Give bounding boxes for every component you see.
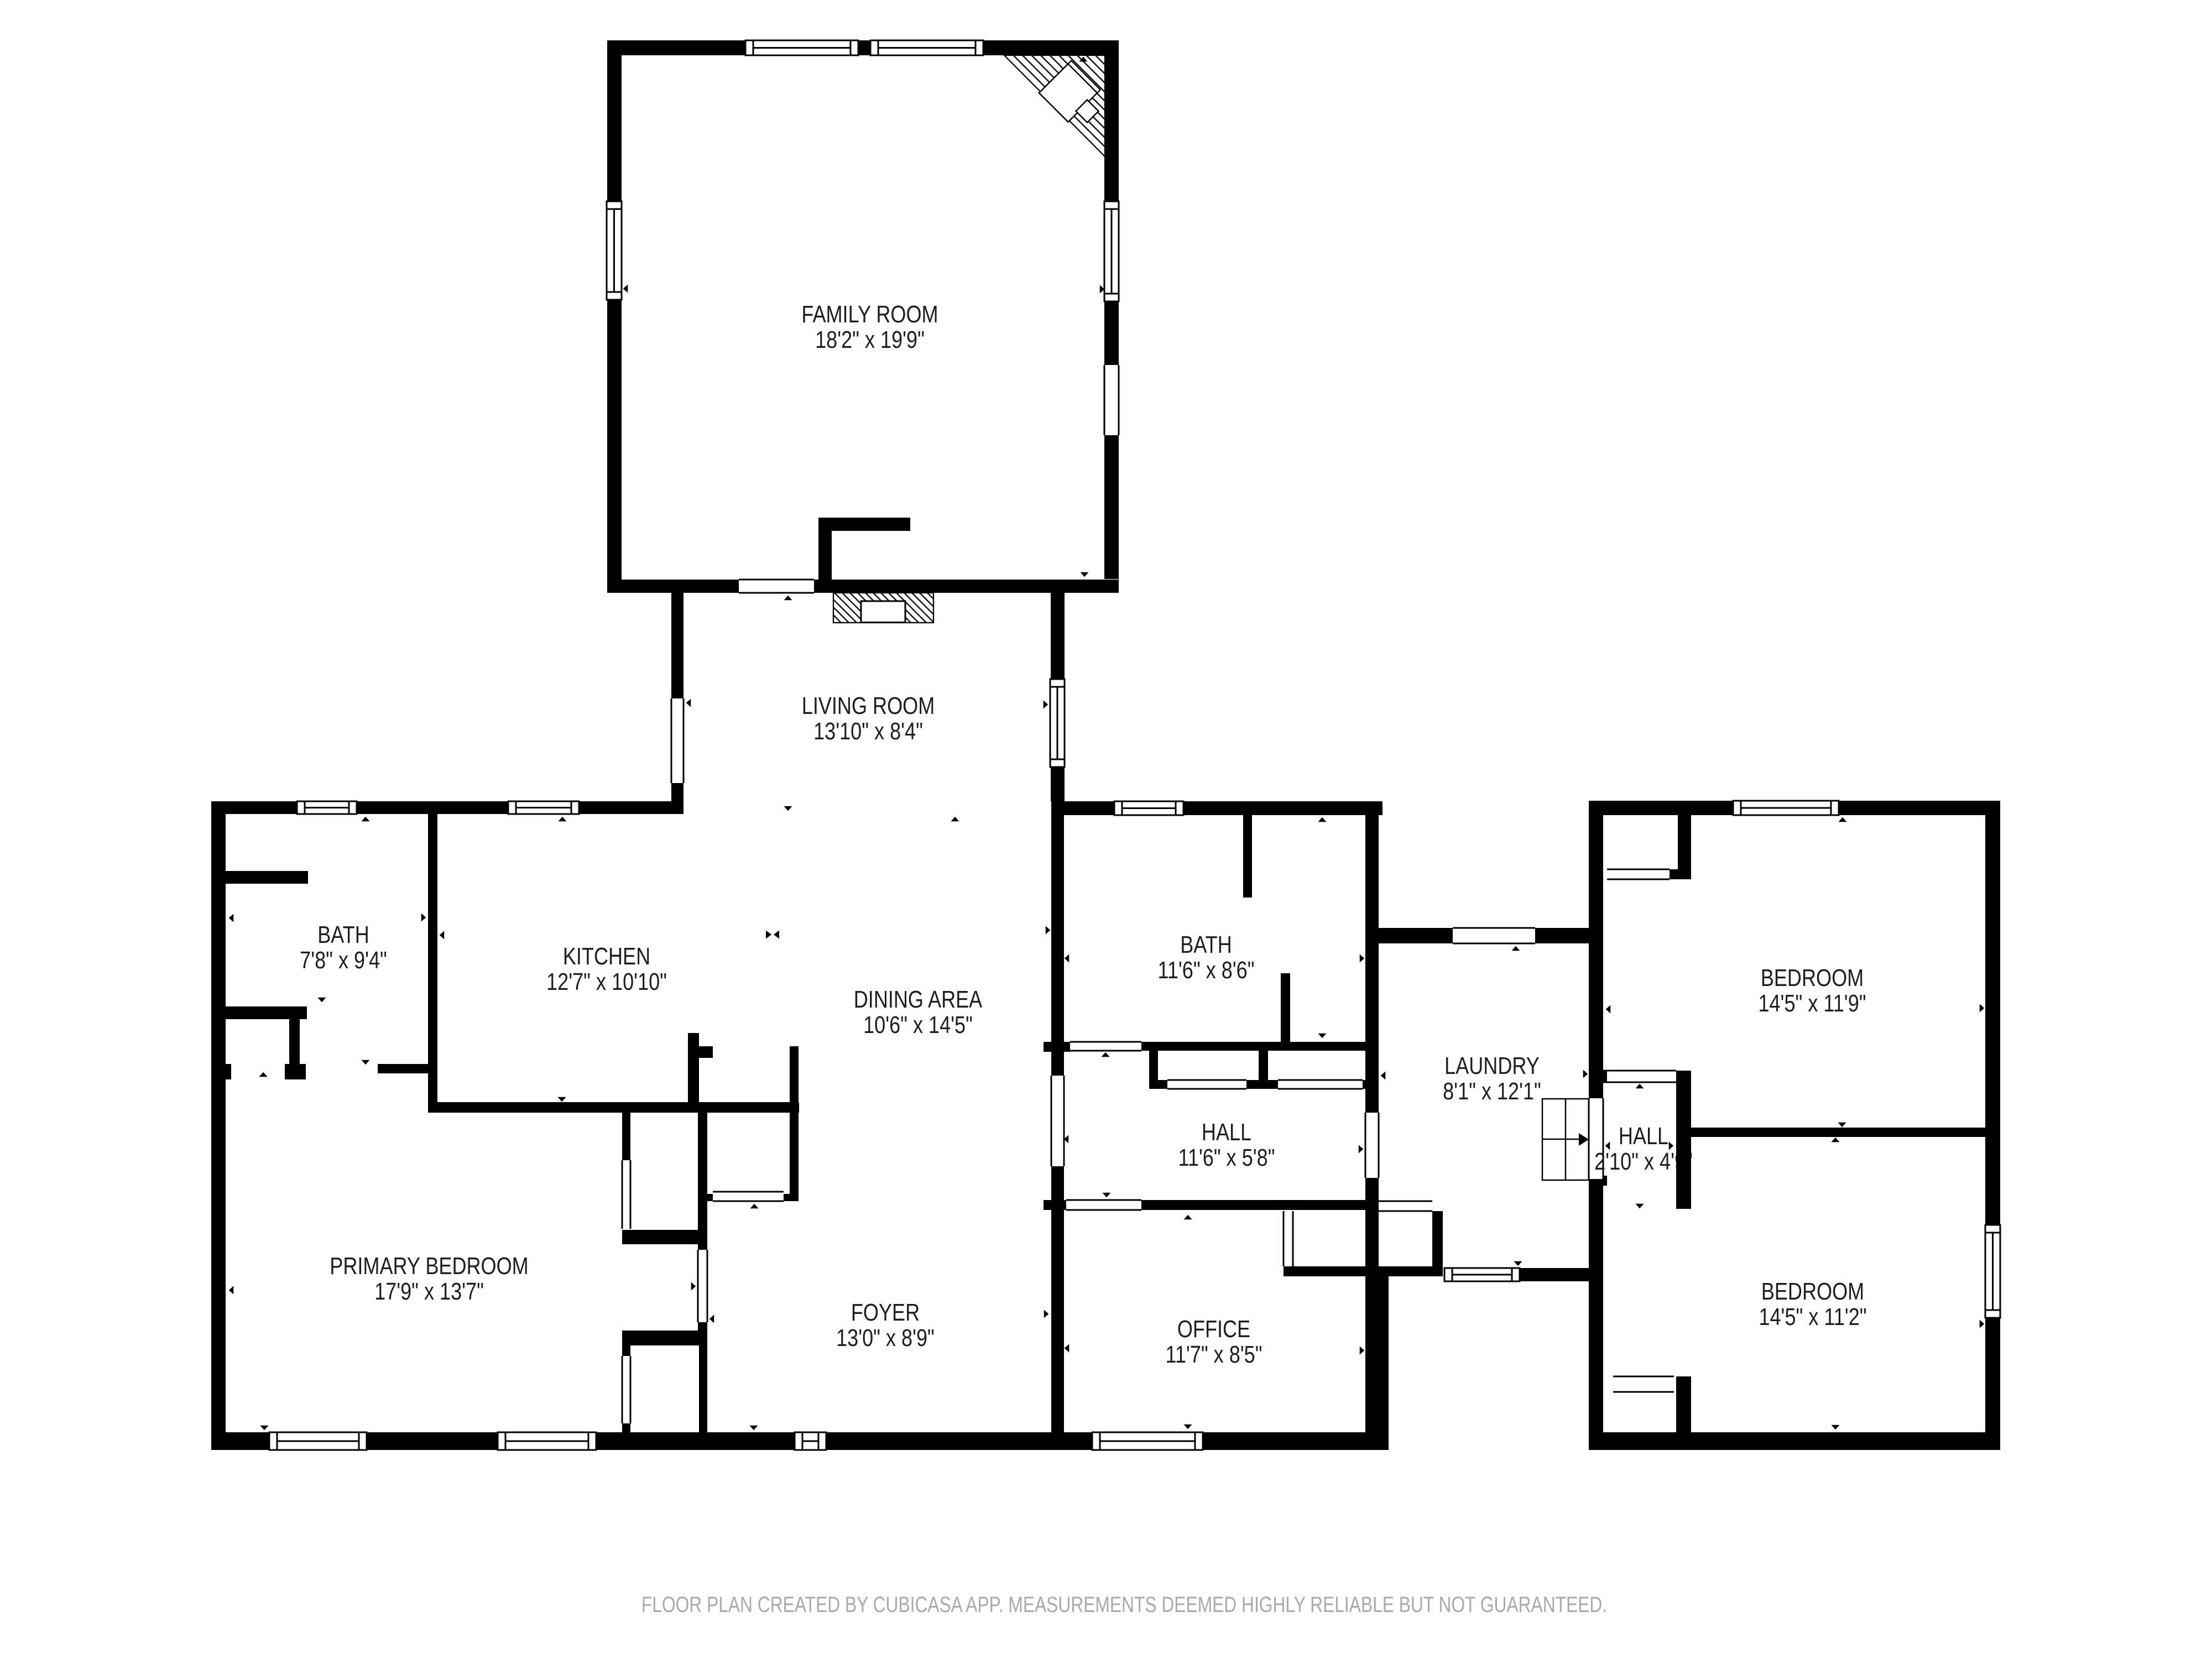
svg-text:HALL: HALL xyxy=(1619,1122,1668,1149)
svg-text:7'8" x 9'4": 7'8" x 9'4" xyxy=(300,946,387,973)
svg-text:11'6" x 8'6": 11'6" x 8'6" xyxy=(1157,956,1254,983)
svg-text:17'9" x 13'7": 17'9" x 13'7" xyxy=(374,1277,484,1305)
svg-text:FAMILY ROOM: FAMILY ROOM xyxy=(801,300,938,327)
svg-text:DINING AREA: DINING AREA xyxy=(854,985,983,1013)
svg-text:LAUNDRY: LAUNDRY xyxy=(1444,1052,1540,1079)
svg-text:HALL: HALL xyxy=(1202,1118,1251,1145)
svg-text:FLOOR PLAN CREATED BY CUBICASA: FLOOR PLAN CREATED BY CUBICASA APP. MEAS… xyxy=(641,1592,1607,1616)
svg-text:13'0" x 8'9": 13'0" x 8'9" xyxy=(836,1324,935,1351)
svg-text:8'1" x 12'1": 8'1" x 12'1" xyxy=(1443,1077,1541,1104)
svg-text:10'6" x 14'5": 10'6" x 14'5" xyxy=(863,1011,973,1038)
svg-text:BATH: BATH xyxy=(317,921,369,948)
svg-text:11'6" x 5'8": 11'6" x 5'8" xyxy=(1178,1144,1275,1171)
svg-text:14'5" x 11'9": 14'5" x 11'9" xyxy=(1758,989,1866,1016)
svg-text:11'7" x 8'5": 11'7" x 8'5" xyxy=(1165,1340,1262,1368)
svg-text:BEDROOM: BEDROOM xyxy=(1761,964,1864,991)
svg-text:BATH: BATH xyxy=(1180,931,1232,958)
svg-text:BEDROOM: BEDROOM xyxy=(1761,1277,1864,1305)
svg-text:LIVING ROOM: LIVING ROOM xyxy=(802,692,935,719)
svg-text:14'5" x 11'2": 14'5" x 11'2" xyxy=(1759,1303,1866,1330)
svg-text:13'10" x 8'4": 13'10" x 8'4" xyxy=(813,717,923,744)
svg-text:OFFICE: OFFICE xyxy=(1177,1315,1250,1342)
svg-text:18'2" x 19'9": 18'2" x 19'9" xyxy=(815,326,925,353)
svg-text:KITCHEN: KITCHEN xyxy=(563,942,650,969)
svg-text:12'7" x 10'10": 12'7" x 10'10" xyxy=(546,968,667,995)
svg-text:PRIMARY BEDROOM: PRIMARY BEDROOM xyxy=(330,1252,528,1279)
svg-text:FOYER: FOYER xyxy=(851,1298,920,1326)
